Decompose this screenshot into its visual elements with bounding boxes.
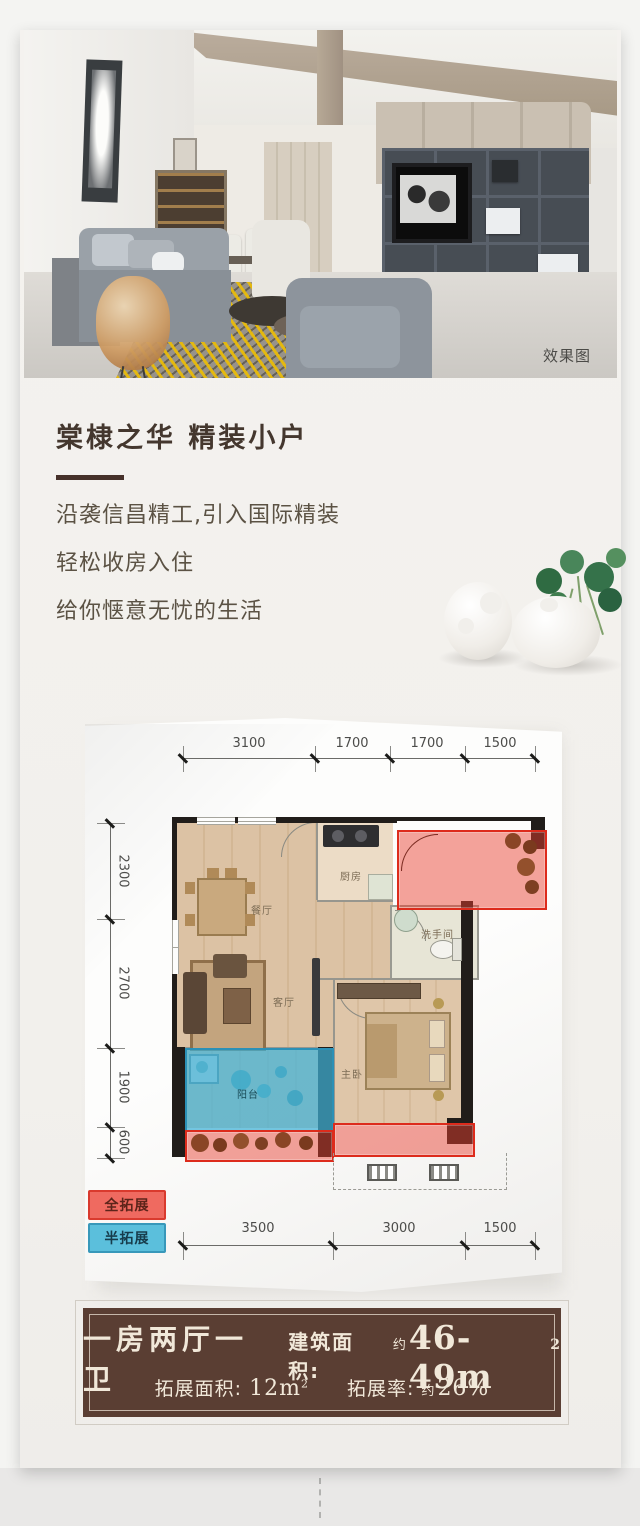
kitchen-wall [317, 900, 393, 902]
expand-area-item: 拓展面积: 12m2 [155, 1374, 309, 1401]
kitchen-wall [316, 822, 318, 900]
dim-label-top: 1700 [410, 736, 443, 751]
dining-chair [245, 882, 255, 894]
expand-area-value: 12m [249, 1376, 301, 1401]
room-label-master: 主卧 [341, 1066, 363, 1081]
bedroom-wall [317, 978, 470, 980]
eggshell-crack [540, 598, 558, 612]
stove-burner [355, 830, 367, 842]
wardrobe [337, 983, 421, 999]
expand-area-label: 拓展面积: [155, 1378, 242, 1400]
built-area-sup: 2 [550, 1337, 561, 1353]
dining-chair [185, 914, 195, 926]
expand-rate-label: 拓展率: [347, 1378, 414, 1400]
photo-tv-screen [392, 163, 472, 243]
dining-chair [225, 868, 237, 878]
kitchen-counter [368, 874, 393, 900]
hero-interior-photo: 效果图 [24, 30, 617, 378]
page-title: 棠棣之华 精装小户 [56, 416, 308, 455]
dim-line-bottom [183, 1245, 535, 1246]
bottom-dashed-divider [319, 1478, 321, 1518]
bath-sink [394, 908, 418, 932]
pillow [429, 1020, 445, 1048]
room-label-kitchen: 厨房 [340, 868, 362, 883]
toilet-tank [452, 938, 462, 961]
dim-label-bottom: 3500 [241, 1221, 274, 1236]
title-underline-bar [56, 475, 124, 480]
legend-full-expand: 全拓展 [88, 1190, 166, 1220]
render-watermark: 效果图 [543, 345, 591, 366]
dim-label-left: 2300 [116, 854, 131, 887]
outer-wall-top-right [397, 817, 533, 821]
expand-rate-value: 26% [437, 1376, 489, 1401]
planter [523, 840, 537, 854]
planter [233, 1133, 249, 1149]
dim-line-left [110, 823, 111, 1158]
dining-chair [185, 882, 195, 894]
room-label-living: 客厅 [273, 994, 295, 1009]
expand-rate-item: 拓展率: 约26% [347, 1374, 489, 1401]
legend-half-expand: 半拓展 [88, 1223, 166, 1253]
intro-line-3: 给你惬意无忧的生活 [56, 588, 476, 636]
eggshell-crack [480, 592, 502, 614]
window [238, 817, 276, 825]
dining-table [197, 878, 247, 936]
coffee-table [223, 988, 251, 1024]
room-label-dining: 餐厅 [251, 902, 273, 917]
dim-label-top: 1700 [335, 736, 368, 751]
planter [525, 880, 539, 894]
dim-label-left: 600 [116, 1130, 131, 1155]
photo-shelf-books-dark [492, 160, 518, 182]
photo-gray-armchair [286, 278, 432, 378]
eggshell-left [444, 582, 512, 660]
planter [191, 1134, 209, 1152]
dim-label-bottom: 1500 [483, 1221, 516, 1236]
planter [299, 1136, 313, 1150]
ac-platform-outline [333, 1153, 507, 1190]
plant-leaf [536, 568, 562, 594]
nightstand-lamp [433, 998, 444, 1009]
planter [275, 1132, 291, 1148]
pillow [429, 1054, 445, 1082]
photo-wall-art-frame [82, 59, 123, 202]
dining-chair [207, 868, 219, 878]
nightstand-lamp [433, 1090, 444, 1101]
dim-label-top: 1500 [483, 736, 516, 751]
intro-paragraph: 沿袭信昌精工,引入国际精装 轻松收房入住 给你惬意无忧的生活 [56, 492, 476, 636]
full-expand-zone-bedroom-front [333, 1123, 475, 1157]
half-expand-zone-balcony [185, 1048, 334, 1132]
photo-shelf-books [486, 208, 520, 234]
planter [517, 858, 535, 876]
legend-half-expand-label: 半拓展 [105, 1228, 150, 1248]
eggshell-crack [458, 618, 474, 634]
intro-line-1: 沿袭信昌精工,引入国际精装 [56, 492, 476, 540]
window [197, 817, 235, 825]
planter [255, 1137, 268, 1150]
planter [213, 1138, 227, 1152]
stove [323, 825, 379, 847]
photo-wall-art [88, 70, 116, 189]
bed-blanket [367, 1024, 397, 1078]
ac-unit [367, 1164, 397, 1181]
plant-leaf [560, 550, 584, 574]
built-area-approx: 约 [393, 1334, 406, 1353]
dim-label-left: 1900 [116, 1070, 131, 1103]
photo-armchair-seat [300, 306, 400, 368]
expand-area-sup: 2 [301, 1378, 309, 1391]
plant-leaf [598, 588, 622, 612]
outer-wall-right [461, 901, 473, 1127]
planter [505, 833, 521, 849]
room-label-balcony: 阳台 [237, 1086, 259, 1101]
plant-leaf [606, 548, 626, 568]
photo-tv-picture [400, 175, 456, 223]
stove-burner [332, 830, 344, 842]
floorplan: 3100 1700 1700 1500 2300 2700 1900 600 3… [85, 718, 562, 1292]
dim-label-bottom: 3000 [382, 1221, 415, 1236]
room-label-bath: 洗手间 [421, 926, 454, 941]
banner-row-2: 拓展面积: 12m2 拓展率: 约26% [83, 1374, 561, 1401]
poster-card: 效果图 棠棣之华 精装小户 沿袭信昌精工,引入国际精装 轻松收房入住 给你惬意无… [20, 30, 621, 1468]
eggshell-plant-decor [428, 540, 628, 680]
intro-line-2: 轻松收房入住 [56, 540, 476, 588]
sofa [183, 972, 207, 1034]
tv-cabinet [312, 958, 320, 1036]
ac-unit [429, 1164, 459, 1181]
balcony-wall-left [172, 1047, 185, 1157]
window [172, 920, 179, 974]
unit-info-banner: 一房两厅一卫 建筑面积: 约 46-49m2 拓展面积: 12m2 拓展率: 约… [83, 1308, 561, 1417]
dim-label-top: 3100 [232, 736, 265, 751]
bed [365, 1012, 451, 1090]
dim-line-top [183, 758, 535, 759]
dim-label-left: 2700 [116, 966, 131, 999]
expand-rate-approx: 约 [421, 1384, 435, 1399]
legend-full-expand-label: 全拓展 [105, 1195, 150, 1215]
photo-amber-floor-lamp [96, 276, 170, 370]
armchair [213, 954, 247, 978]
